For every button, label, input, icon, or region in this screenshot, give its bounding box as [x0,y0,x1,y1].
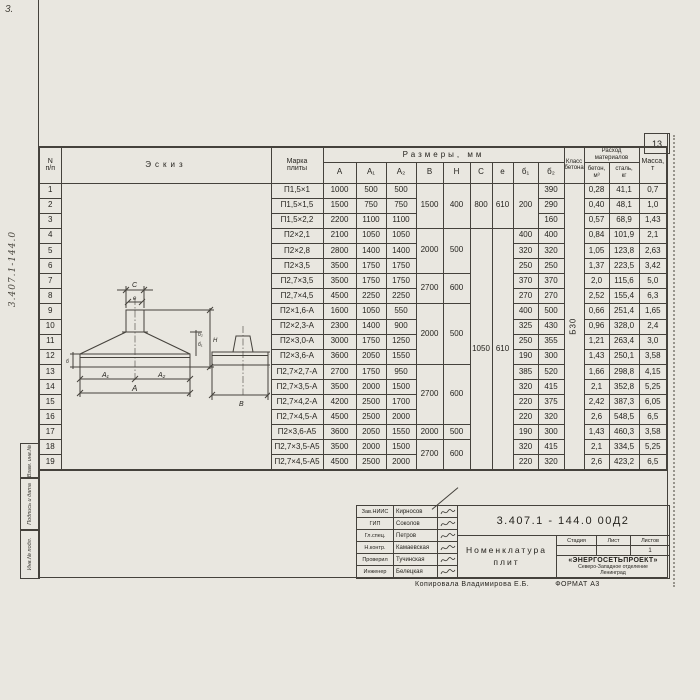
cell-A1: 2250 [356,289,386,304]
cell-b2: 270 [538,289,564,304]
col-header-B: B [416,162,443,183]
document-number: 3.407.1 - 144.0 00Д2 [457,506,669,536]
cell-mass: 1,0 [639,198,667,213]
num-header-line1: N [40,158,61,165]
cell-b1: 270 [513,289,538,304]
cell-num: 11 [39,334,61,349]
cell-b2: 520 [538,364,564,379]
cell-A: 1600 [323,304,356,319]
col-header-H: H [443,162,470,183]
cell-A1: 1750 [356,258,386,273]
col-header-e: e [492,162,513,183]
cell-A: 4500 [323,410,356,425]
cell-b2: 160 [538,213,564,228]
cell-mass: 3,42 [639,258,667,273]
cell-concrete: 1,43 [584,349,609,364]
cell-steel: 123,8 [609,243,639,258]
cell-concrete: 0,40 [584,198,609,213]
cell-A1: 500 [356,183,386,198]
signature-squiggle [438,506,457,517]
sheet-value [597,546,631,555]
person-name: Кирносов [394,506,438,517]
cell-steel: 251,4 [609,304,639,319]
cell-b2: 500 [538,304,564,319]
sketch-label-h: H [213,338,218,344]
drawing-title: Номенклатура плит [457,536,557,578]
cell-A1: 2000 [356,380,386,395]
cell-steel: 352,8 [609,380,639,395]
cell-B: 2700 [416,273,443,303]
col-header-d1: б₁ [513,162,538,183]
cell-num: 5 [39,243,61,258]
cell-num: 12 [39,349,61,364]
cell-mark: П2×1,6-А [271,304,323,319]
cell-num: 15 [39,395,61,410]
cell-b1: 400 [513,228,538,243]
cell-H: 500 [443,425,470,440]
cell-A: 3600 [323,425,356,440]
signature-row: ПроверилТучинская [357,554,457,566]
cell-b2: 390 [538,183,564,198]
cell-steel: 68,9 [609,213,639,228]
cell-A1: 2050 [356,349,386,364]
cell-mass: 2,4 [639,319,667,334]
stage-header-row: Стадия Лист Листов [557,536,669,546]
stage-value [557,546,597,555]
copied-by: Копировала Владимирова Е.Б. [415,581,529,588]
cell-steel: 115,6 [609,273,639,288]
cell-b1: 200 [513,183,538,228]
cell-B: 2000 [416,228,443,273]
stage-label: Стадия [557,536,597,545]
cell-concrete: 1,43 [584,425,609,440]
stamp-podpis-data: Подпись и дата [20,477,40,531]
mass-header-line1: Масса, [640,158,667,165]
cell-mark: П2×3,5 [271,258,323,273]
signature-squiggle [438,518,457,529]
cell-concrete: 2,52 [584,289,609,304]
title-block: Зав.НИИСКирносовГИПСоколовГл.спец.Петров… [356,505,670,579]
sketch-label-d0: б [66,359,69,365]
cell-num: 19 [39,455,61,470]
cell-mass: 0,7 [639,183,667,198]
person-name: Камаевская [394,542,438,553]
col-header-A: A [323,162,356,183]
signature-row: ГИПСоколов [357,518,457,530]
col-header-A1: A₁ [356,162,386,183]
cell-A2: 1250 [386,334,416,349]
person-role: Инженер [357,566,394,578]
cell-mark: П2,7×3,5 [271,273,323,288]
cell-b2: 290 [538,198,564,213]
person-name: Петров [394,530,438,541]
sheet-label: Лист [597,536,631,545]
cell-mass: 6,5 [639,410,667,425]
cell-b1: 190 [513,425,538,440]
cell-concrete: 0,66 [584,304,609,319]
cell-mark: П2,7×4,5-А5 [271,455,323,470]
cell-num: 3 [39,213,61,228]
cell-b2: 370 [538,273,564,288]
cell-steel: 155,4 [609,289,639,304]
cell-concrete: 2,42 [584,395,609,410]
cell-mass: 6,3 [639,289,667,304]
cell-B: 2000 [416,304,443,364]
cell-concrete: 1,05 [584,243,609,258]
concrete-header-line2: м³ [585,173,609,179]
cell-H: 600 [443,364,470,424]
cell-A: 3500 [323,440,356,455]
cell-H: 600 [443,273,470,303]
cell-A: 3500 [323,380,356,395]
cell-concrete: 0,28 [584,183,609,198]
cell-A2: 1700 [386,395,416,410]
table-row: 1 [39,183,667,198]
plate-sketch: C e A₁ A₂ A б б₂ б₁ H B 100 [62,184,270,467]
cell-steel: 41,1 [609,183,639,198]
cell-mass: 3,58 [639,425,667,440]
cell-concrete: 2,0 [584,273,609,288]
cell-b1: 220 [513,410,538,425]
cell-concrete: 2,6 [584,410,609,425]
title-block-signatures: Зав.НИИСКирносовГИПСоколовГл.спец.Петров… [357,506,458,578]
stage-value-row: 1 [557,546,669,556]
col-header-mark: Марка плиты [271,147,323,183]
cell-A2: 2000 [386,410,416,425]
signature-row: ИнженерБелецкая [357,566,457,578]
cell-A2: 900 [386,319,416,334]
cell-mark: П2×3,6-А [271,349,323,364]
sheet-edge-dots [673,135,675,587]
sketch-label-b: B [239,401,244,408]
cell-num: 4 [39,228,61,243]
mass-header-line2: т [640,165,667,172]
stamp-vzam-inv: Взам. инв.№ [20,443,40,479]
cell-A2: 500 [386,183,416,198]
col-header-d2: б₂ [538,162,564,183]
signature-row: Зав.НИИСКирносов [357,506,457,518]
cell-C: 800 [470,183,492,228]
col-header-dims: Размеры, мм [323,147,564,162]
cell-A: 1500 [323,198,356,213]
cell-mass: 2,63 [639,243,667,258]
cell-A: 2200 [323,213,356,228]
format-label: ФОРМАТ А3 [555,581,600,588]
cell-mark: П1,5×1,5 [271,198,323,213]
cell-A2: 1400 [386,243,416,258]
cell-mass: 3,58 [639,349,667,364]
cell-mark: П2,7×4,5 [271,289,323,304]
person-role: Зав.НИИС [357,506,394,517]
cell-A: 3600 [323,349,356,364]
cell-mass: 5,25 [639,380,667,395]
cell-mass: 4,15 [639,364,667,379]
sketch-label-a: A [131,384,137,393]
cell-steel: 250,1 [609,349,639,364]
cell-mass: 6,05 [639,395,667,410]
cell-H: 500 [443,304,470,364]
drawing-title-line2: плит [493,557,519,569]
cell-A: 2300 [323,319,356,334]
cell-A1: 750 [356,198,386,213]
cell-num: 1 [39,183,61,198]
cell-B: 1500 [416,183,443,228]
cell-A1: 1050 [356,228,386,243]
cell-A1: 1750 [356,364,386,379]
cell-A: 3000 [323,334,356,349]
cell-mark: П1,5×2,2 [271,213,323,228]
margin-doc-note: 3.407.1-144.0 [8,214,22,324]
cell-mark: П2,7×3,5-А5 [271,440,323,455]
col-header-consumption: Расход материалов [584,147,639,162]
cell-b2: 355 [538,334,564,349]
concrete-class-cell: Б30 [564,183,584,470]
cell-b2: 320 [538,243,564,258]
person-name: Тучинская [394,554,438,565]
person-role: Гл.спец. [357,530,394,541]
cell-b2: 415 [538,440,564,455]
cell-steel: 548,5 [609,410,639,425]
col-header-mass: Масса, т [639,147,667,183]
cell-A2: 1500 [386,440,416,455]
cell-H: 400 [443,183,470,228]
cell-A1: 2050 [356,425,386,440]
cell-b2: 300 [538,349,564,364]
cell-A2: 2250 [386,289,416,304]
cell-concrete: 1,66 [584,364,609,379]
cell-mark: П2×2,3-А [271,319,323,334]
cell-num: 17 [39,425,61,440]
cell-A2: 1550 [386,425,416,440]
signature-squiggle [438,530,457,541]
stamp-inv-podl-label: Инв.№ подл. [27,538,33,571]
cell-A: 4500 [323,289,356,304]
sketch-label-a2: A₂ [157,372,166,379]
cell-A1: 1750 [356,334,386,349]
cons-header-line2: материалов [585,155,639,161]
cell-steel: 48,1 [609,198,639,213]
cell-A2: 950 [386,364,416,379]
sheets-value: 1 [631,546,669,555]
cell-steel: 328,0 [609,319,639,334]
cell-b1: 325 [513,319,538,334]
cell-C: 1050 [470,228,492,470]
cell-steel: 387,3 [609,395,639,410]
cell-concrete: 2,1 [584,440,609,455]
concrete-class: Б30 [570,318,578,335]
cell-b2: 400 [538,228,564,243]
organization-city: Ленинград [600,571,626,577]
cell-mark: П2,7×4,2-А [271,395,323,410]
cell-num: 10 [39,319,61,334]
drawing-sheet: 13 3. 3.407.1-144.0 Взам. инв.№ Подпись … [0,0,700,700]
col-header-sketch: Эскиз [61,147,271,183]
organization-block: «ЭНЕРГОСЕТЬПРОЕКТ» Северо-Западное отдел… [557,556,669,578]
cell-A: 2800 [323,243,356,258]
cell-num: 6 [39,258,61,273]
cell-A1: 1400 [356,243,386,258]
cell-steel: 101,9 [609,228,639,243]
copy-note: Копировала Владимирова Е.Б. ФОРМАТ А3 [415,581,675,588]
cell-A: 3500 [323,273,356,288]
title-block-right: 3.407.1 - 144.0 00Д2 Номенклатура плит С… [457,506,669,578]
cell-b1: 250 [513,334,538,349]
cell-b2: 320 [538,410,564,425]
cell-A2: 1500 [386,380,416,395]
person-name: Белецкая [394,566,438,578]
cell-steel: 223,5 [609,258,639,273]
cell-concrete: 2,6 [584,455,609,470]
cell-b2: 375 [538,395,564,410]
cell-A: 3500 [323,258,356,273]
cell-mass: 6,5 [639,455,667,470]
plate-table-body: 1 [39,183,667,470]
cell-b1: 250 [513,258,538,273]
sketch-label-e: e [133,296,137,302]
cell-num: 18 [39,440,61,455]
cell-A2: 1750 [386,273,416,288]
col-header-A2: A₂ [386,162,416,183]
cell-b1: 320 [513,380,538,395]
cell-steel: 298,8 [609,364,639,379]
cell-A1: 2000 [356,440,386,455]
cell-A: 4200 [323,395,356,410]
cell-A2: 1100 [386,213,416,228]
signature-squiggle [438,554,457,565]
stamp-vzam-inv-label: Взам. инв.№ [27,445,33,478]
person-role: Проверил [357,554,394,565]
stamp-podpis-data-label: Подпись и дата [27,483,33,525]
mark-header-line1: Марка [272,158,323,165]
cell-A: 4500 [323,455,356,470]
cell-mark: П2×2,1 [271,228,323,243]
cell-mass: 1,43 [639,213,667,228]
sketch-label-d2: б₂ [198,332,203,338]
cell-mark: П2×3,6-А5 [271,425,323,440]
person-name: Соколов [394,518,438,529]
cell-mark: П1,5×1 [271,183,323,198]
cell-num: 9 [39,304,61,319]
col-header-class: Класс бетона [564,147,584,183]
cell-steel: 423,2 [609,455,639,470]
class-header-line2: бетона [565,165,584,171]
cell-A1: 1100 [356,213,386,228]
signature-row: Гл.спец.Петров [357,530,457,542]
cell-A: 1000 [323,183,356,198]
cell-H: 500 [443,228,470,273]
cell-concrete: 1,37 [584,258,609,273]
cell-A2: 1550 [386,349,416,364]
cell-b2: 430 [538,319,564,334]
cell-A1: 2500 [356,455,386,470]
cell-b2: 250 [538,258,564,273]
stamp-inv-podl: Инв.№ подл. [20,529,40,579]
cell-steel: 263,4 [609,334,639,349]
cell-A2: 550 [386,304,416,319]
cell-mass: 1,65 [639,304,667,319]
cell-b1: 320 [513,243,538,258]
cell-e: 610 [492,183,513,228]
cell-mark: П2,7×4,5-А [271,410,323,425]
cell-num: 16 [39,410,61,425]
cell-B: 2000 [416,425,443,440]
signature-squiggle [438,542,457,553]
cell-b1: 370 [513,273,538,288]
signature-squiggle [438,566,457,578]
sketch-label-c: C [132,282,138,289]
nomenclature-table: N п/п Эскиз Марка плиты Размеры, мм Клас… [38,146,668,471]
cell-A2: 750 [386,198,416,213]
cell-mark: П2×3,0-А [271,334,323,349]
cell-concrete: 0,57 [584,213,609,228]
cell-A1: 2500 [356,395,386,410]
cell-A2: 1050 [386,228,416,243]
drawing-title-line1: Номенклатура [466,545,547,557]
cell-steel: 334,5 [609,440,639,455]
cell-concrete: 2,1 [584,380,609,395]
sketch-label-a1: A₁ [101,372,110,379]
cell-b2: 320 [538,455,564,470]
cell-b1: 385 [513,364,538,379]
cell-mark: П2,7×3,5-А [271,380,323,395]
cell-concrete: 0,96 [584,319,609,334]
col-header-concrete: бетон, м³ [584,162,609,183]
signature-row: Н.контр.Камаевская [357,542,457,554]
title-block-lower: Номенклатура плит Стадия Лист Листов 1 [457,536,669,578]
cell-A1: 1400 [356,319,386,334]
header-row-1: N п/п Эскиз Марка плиты Размеры, мм Клас… [39,147,667,162]
col-header-C: C [470,162,492,183]
cell-A: 2700 [323,364,356,379]
cell-concrete: 0,84 [584,228,609,243]
cell-mass: 2,1 [639,228,667,243]
sheets-label: Листов [631,536,669,545]
cell-B: 2700 [416,440,443,470]
cell-concrete: 1,21 [584,334,609,349]
cell-steel: 460,3 [609,425,639,440]
person-role: ГИП [357,518,394,529]
cell-A1: 1750 [356,273,386,288]
cell-b2: 415 [538,380,564,395]
steel-header-line2: кг [610,173,639,179]
cell-b1: 190 [513,349,538,364]
cell-num: 8 [39,289,61,304]
cell-B: 2700 [416,364,443,424]
mark-header-line2: плиты [272,165,323,172]
person-role: Н.контр. [357,542,394,553]
cell-b1: 320 [513,440,538,455]
sketch-cell: C e A₁ A₂ A б б₂ б₁ H B 100 [61,183,271,470]
cell-A: 2100 [323,228,356,243]
cell-A1: 1050 [356,304,386,319]
cell-num: 7 [39,273,61,288]
corner-note: 3. [5,4,13,15]
cell-b2: 300 [538,425,564,440]
cell-num: 14 [39,380,61,395]
cell-mass: 5,25 [639,440,667,455]
cell-mark: П2,7×2,7-А [271,364,323,379]
sketch-label-d1: б₁ [198,342,203,348]
cell-A2: 1750 [386,258,416,273]
cell-e: 610 [492,228,513,470]
cell-b1: 220 [513,455,538,470]
cell-mass: 5,0 [639,273,667,288]
cell-num: 13 [39,364,61,379]
col-header-steel: сталь, кг [609,162,639,183]
cell-H: 600 [443,440,470,470]
concrete-header-line1: бетон, [585,166,609,172]
cell-A2: 2000 [386,455,416,470]
